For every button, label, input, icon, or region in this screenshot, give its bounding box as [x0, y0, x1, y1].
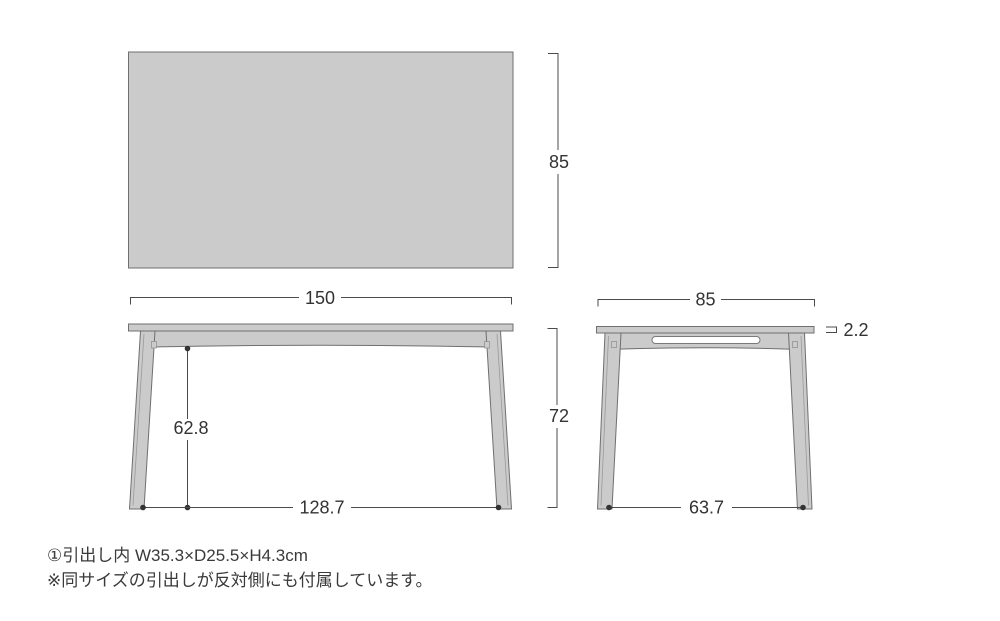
side-left-leg-shape	[598, 333, 622, 509]
dimension-top-thickness: 2.2	[826, 320, 869, 340]
dimension-label-side-depth: 85	[695, 290, 715, 310]
dimension-front-leg-height: 62.8	[165, 346, 211, 511]
leg-joint-notch	[152, 342, 157, 349]
footnote-opposite-drawer: ※同サイズの引出しが反対側にも付属しています。	[47, 571, 433, 590]
leg-joint-notch	[612, 342, 617, 348]
dimension-front-floor-span: 128.7	[140, 498, 501, 518]
dimension-endpoint-dot	[185, 346, 191, 352]
table-dimension-diagram: 85 150 62.8	[0, 0, 1000, 621]
thickness-bracket	[826, 327, 837, 333]
dimension-top-depth: 85	[543, 53, 576, 268]
dimension-endpoint-dot	[606, 505, 612, 511]
front-tabletop-shape	[129, 324, 514, 331]
front-apron-shape	[147, 331, 494, 347]
drawer-slot-shape	[652, 337, 760, 344]
tabletop-plan-shape	[129, 52, 514, 268]
side-view	[597, 327, 815, 510]
dimension-endpoint-dot	[800, 505, 806, 511]
dimension-side-floor-span: 63.7	[606, 498, 806, 518]
footnotes: ①引出し内 W35.3×D25.5×H4.3cm ※同サイズの引出しが反対側にも…	[47, 546, 433, 590]
dimension-label-front-leg-height: 62.8	[173, 418, 208, 438]
dimension-endpoint-dot	[140, 505, 146, 511]
dimension-label-side-floor-span: 63.7	[689, 498, 724, 518]
diagram-svg: 85 150 62.8	[0, 0, 1000, 621]
dimension-total-height: 72	[544, 329, 573, 508]
top-view	[129, 52, 514, 268]
leg-joint-notch	[485, 342, 490, 349]
dimension-endpoint-dot	[496, 505, 502, 511]
dimension-label-total-height: 72	[549, 406, 569, 426]
side-right-leg-shape	[789, 333, 813, 509]
dimension-label-top-depth: 85	[549, 152, 569, 172]
dimension-label-top-thickness: 2.2	[844, 320, 869, 340]
footnote-drawer-size: ①引出し内 W35.3×D25.5×H4.3cm	[47, 546, 308, 565]
dimension-side-depth: 85	[598, 290, 816, 310]
side-tabletop-shape	[597, 327, 815, 334]
leg-joint-notch	[793, 342, 798, 348]
front-view	[129, 324, 514, 509]
dimension-label-width: 150	[305, 288, 335, 308]
dimension-label-front-floor-span: 128.7	[299, 498, 344, 518]
dimension-width: 150	[130, 288, 512, 308]
